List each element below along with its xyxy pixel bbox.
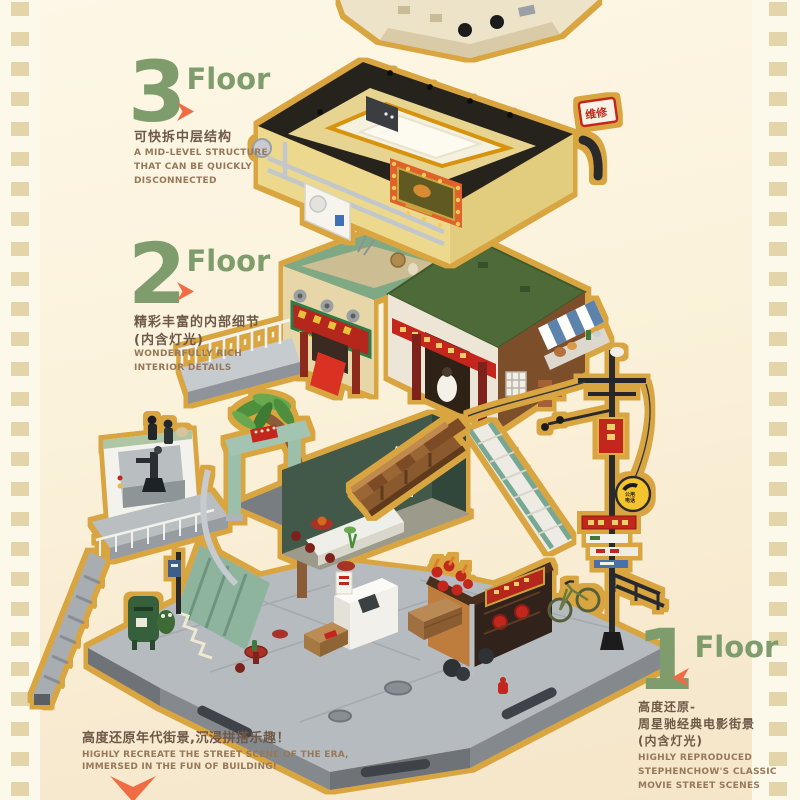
floor-2-word: Floor	[186, 244, 270, 278]
floor-3-word: Floor	[186, 62, 270, 96]
mailbox	[128, 596, 159, 650]
svg-text:电话: 电话	[625, 497, 635, 504]
svg-text:公用: 公用	[625, 491, 635, 498]
footer-en-text: HIGHLY RECREATE THE STREET SCENE OF THE …	[82, 750, 349, 773]
water-tap-icon	[142, 478, 166, 492]
landlady-figure	[437, 374, 457, 402]
floor-1-number: 1	[636, 624, 692, 696]
floor-1-zh-caption: 高度还原- 周星驰经典电影街景 (内含灯光)	[638, 700, 755, 751]
floor-1-en-caption: HIGHLY REPRODUCED STEPHENCHOW'S CLASSIC …	[638, 752, 777, 794]
floor-2-label: 2 Floor 精彩丰富的内部细节 (内含灯光) WONDERFULLY RIC…	[128, 238, 270, 310]
floor-2-number: 2	[128, 238, 184, 310]
floor-2-zh-caption: 精彩丰富的内部细节 (内含灯光)	[134, 315, 260, 352]
rail-track	[32, 552, 106, 706]
roof-fragment-model	[340, 0, 598, 58]
green-figure	[157, 610, 175, 634]
floor-3-zh-caption: 可快拆中层结构	[134, 130, 232, 148]
floor-2-en-caption: WONDERFULLY RICH INTERIOR DETAILS	[134, 348, 242, 376]
floor1-model: 公用 电话	[32, 347, 664, 790]
footer-zh-text: 高度还原年代街景,沉浸拼搭乐趣！	[82, 727, 349, 746]
floor-3-number: 3	[128, 56, 184, 128]
footer-caption: 高度还原年代街景,沉浸拼搭乐趣！ HIGHLY RECREATE THE STR…	[82, 727, 349, 773]
floor-1-word: Floor	[694, 630, 778, 664]
repair-flag-sign: 维修	[579, 98, 618, 127]
floor-3-label: 3 Floor 可快拆中层结构 A MID-LEVEL STRUCTURE TH…	[128, 56, 270, 128]
side-stairs	[468, 422, 572, 552]
street-fence	[612, 574, 664, 610]
floor-1-label: 1 Floor 高度还原- 周星驰经典电影街景 (内含灯光) HIGHLY RE…	[636, 624, 778, 696]
bird-icon	[610, 347, 624, 357]
floor-3-en-caption: A MID-LEVEL STRUCTURE THAT CAN BE QUICKL…	[134, 147, 268, 189]
floor3-model: 维修	[253, 62, 617, 264]
curved-pipe	[583, 140, 598, 176]
poster-background: TAI PAK SEA FOOD	[0, 0, 800, 800]
